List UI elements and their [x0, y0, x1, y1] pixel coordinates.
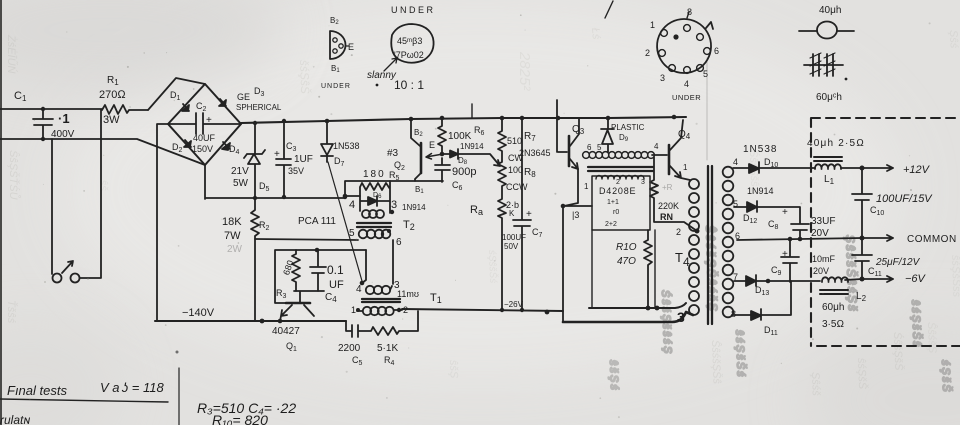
svg-text:3: 3: [391, 199, 397, 211]
svg-text:SPHERICAL: SPHERICAL: [236, 103, 282, 112]
svg-text:3: 3: [660, 73, 665, 83]
svg-text:6: 6: [587, 143, 592, 152]
svg-text:1: 1: [584, 182, 589, 191]
svg-text:·1: ·1: [58, 111, 70, 126]
svg-text:6: 6: [396, 237, 402, 248]
svg-text:Şŝś: Şŝś: [947, 30, 960, 49]
svg-text:|3: |3: [572, 210, 579, 220]
svg-text:4: 4: [356, 284, 362, 295]
svg-text:Fınal tests: Fınal tests: [7, 383, 67, 398]
svg-text:100UF: 100UF: [502, 233, 526, 242]
svg-text:900p: 900p: [452, 166, 476, 178]
svg-text:ŚŝśŞšŠ: ŚŝśŞšŠ: [891, 332, 905, 372]
svg-text:1: 1: [351, 305, 356, 315]
svg-text:510: 510: [507, 136, 522, 146]
svg-text:ŝšŞ: ŝšŞ: [447, 360, 460, 379]
svg-text:4: 4: [349, 199, 355, 211]
svg-text:33UF: 33UF: [811, 216, 835, 227]
svg-text:1N914: 1N914: [402, 203, 426, 212]
svg-text:ŝš: ŝš: [97, 180, 109, 192]
svg-text:šśŞŝŠ: šśŞŝŠ: [297, 60, 313, 95]
svg-text:60μᶜh: 60μᶜh: [816, 92, 842, 103]
svg-text:5: 5: [733, 199, 738, 209]
svg-text:Ťšŝś: Ťšŝś: [5, 300, 18, 324]
svg-text:D6: D6: [373, 192, 382, 200]
svg-text:2: 2: [676, 227, 681, 237]
svg-text:40μh: 40μh: [819, 5, 841, 16]
svg-text:ŜŝśšŞŠŝśšŞ: ŜŝśšŞŠŝśšŞ: [703, 225, 721, 313]
svg-text:ŚŝśŞšŝśŞ: ŚŝśŞšŝśŞ: [659, 290, 674, 356]
svg-text:5: 5: [349, 228, 355, 239]
svg-text:1UF: 1UF: [294, 154, 313, 165]
svg-text:100K: 100K: [448, 131, 472, 142]
svg-text:0.1: 0.1: [327, 263, 344, 277]
svg-text:1: 1: [683, 163, 688, 172]
svg-text:'7Pω02: '7Pω02: [394, 50, 424, 60]
svg-text:−140V: −140V: [182, 307, 215, 319]
svg-text:3: 3: [394, 280, 400, 291]
svg-text:ŻśĖĪŰŃ: ŻśĖĪŰŃ: [5, 34, 19, 74]
svg-text:10 : 1: 10 : 1: [394, 78, 424, 92]
svg-text:220K: 220K: [658, 201, 679, 211]
svg-text:V a ʖ = 118: V a ʖ = 118: [100, 380, 164, 395]
svg-text:8: 8: [687, 7, 692, 17]
svg-text:2+2: 2+2: [605, 221, 617, 228]
svg-text:3: 3: [677, 309, 685, 325]
svg-text:1N538: 1N538: [743, 144, 777, 155]
svg-text:ŝśŞšŠŝ: ŝśŞšŠŝ: [909, 300, 924, 349]
svg-text:PCA 111: PCA 111: [298, 216, 336, 227]
svg-text:2200: 2200: [338, 343, 361, 354]
svg-text:6: 6: [735, 231, 740, 241]
svg-text:CCW: CCW: [506, 182, 528, 192]
svg-text:40μh 2·5Ω: 40μh 2·5Ω: [807, 138, 865, 149]
svg-text:COMMON: COMMON: [907, 234, 957, 245]
svg-text:śŞŝšŠś: śŞŝšŠś: [486, 250, 500, 284]
svg-text:D4208E: D4208E: [599, 186, 636, 196]
svg-text:GE: GE: [237, 92, 250, 102]
svg-text:2: 2: [403, 305, 408, 315]
svg-text:20V: 20V: [811, 228, 829, 239]
svg-text:UNDER: UNDER: [391, 5, 436, 15]
svg-text:UNDER: UNDER: [672, 93, 701, 102]
svg-text:+R: +R: [662, 183, 673, 192]
svg-text:E: E: [348, 42, 354, 52]
svg-text:21V: 21V: [231, 166, 249, 177]
svg-text:20V: 20V: [813, 266, 829, 276]
svg-text:2: 2: [645, 48, 650, 58]
svg-text:270Ω: 270Ω: [99, 89, 126, 101]
svg-text:UNDER: UNDER: [321, 83, 351, 90]
svg-text:ɾulatɴ: ɾulatɴ: [0, 413, 30, 425]
svg-text:100: 100: [508, 165, 523, 175]
svg-text:PLASTIC: PLASTIC: [611, 123, 645, 132]
svg-text:11mʊ: 11mʊ: [397, 289, 419, 299]
svg-text:2: 2: [616, 179, 620, 186]
svg-text:1+1: 1+1: [607, 199, 619, 206]
svg-text:2W: 2W: [227, 244, 243, 255]
svg-text:6: 6: [714, 46, 719, 56]
svg-text:4: 4: [654, 142, 659, 151]
svg-text:+12V: +12V: [903, 164, 931, 176]
svg-text:3W: 3W: [103, 114, 120, 126]
svg-text:+: +: [526, 209, 532, 220]
svg-text:60μh: 60μh: [822, 302, 844, 313]
svg-text:+: +: [206, 115, 212, 126]
svg-text:−26V: −26V: [504, 300, 524, 309]
svg-text:1: 1: [650, 20, 655, 30]
svg-text:E: E: [429, 140, 435, 150]
svg-text:+: +: [782, 249, 788, 260]
svg-text:5·1K: 5·1K: [377, 343, 398, 354]
svg-text:UF: UF: [329, 279, 344, 291]
svg-text:7: 7: [733, 272, 738, 282]
svg-text:40427: 40427: [272, 326, 300, 337]
svg-text:Łś: Łś: [589, 27, 602, 40]
svg-text:R1O: R1O: [616, 242, 637, 253]
svg-text:ŝšŞś: ŝšŞś: [607, 360, 620, 392]
svg-text:1N538: 1N538: [333, 141, 360, 151]
svg-text:4: 4: [684, 79, 689, 89]
svg-text:10mF: 10mF: [812, 254, 836, 264]
svg-text:ŜŝśšŞ: ŜŝśšŞ: [925, 322, 939, 354]
svg-text:K: K: [509, 209, 515, 218]
svg-text:40UF: 40UF: [193, 133, 216, 143]
svg-text:2N3645: 2N3645: [519, 148, 551, 158]
svg-text:100UF/15V: 100UF/15V: [876, 193, 933, 205]
svg-text:5: 5: [597, 143, 602, 152]
svg-text:400V: 400V: [51, 129, 75, 140]
svg-text:R₁₀= 820: R₁₀= 820: [212, 412, 268, 425]
svg-text:35V: 35V: [288, 166, 304, 176]
svg-text:47O: 47O: [617, 256, 636, 267]
svg-text:+: +: [782, 207, 788, 218]
svg-text:ŝśŞšŠŝś: ŝśŞšŠŝś: [949, 255, 960, 298]
svg-text:RN: RN: [660, 212, 673, 222]
svg-text:#3: #3: [387, 148, 399, 159]
svg-text:8: 8: [731, 309, 736, 319]
svg-text:r0: r0: [613, 209, 619, 216]
svg-text:4: 4: [733, 157, 738, 167]
svg-text:2825²: 2825²: [516, 51, 533, 91]
svg-text:ŝśŞšŠ: ŝśŞšŠ: [855, 358, 869, 390]
svg-text:5W: 5W: [233, 178, 249, 189]
svg-text:1N914: 1N914: [747, 186, 774, 196]
svg-text:ŝśŞšŠś: ŝśŞšŠś: [733, 330, 748, 379]
svg-text:−6V: −6V: [905, 273, 927, 285]
svg-text:5: 5: [703, 69, 708, 79]
svg-text:7W: 7W: [224, 230, 241, 242]
svg-text:Şŝśš: Şŝśš: [809, 372, 822, 397]
svg-text:ŜŝŞŠŤŚŮ: ŜŝŞŠŤŚŮ: [7, 150, 21, 200]
svg-text:45ᵐβ3: 45ᵐβ3: [397, 36, 422, 46]
svg-text:ŜŝśšŞŠŝ: ŜŝśšŞŠŝ: [709, 340, 724, 385]
svg-text:180: 180: [363, 169, 386, 180]
svg-text:śŞšŠ: śŞšŠ: [939, 360, 953, 394]
svg-text:18K: 18K: [222, 216, 242, 228]
svg-text:3·5Ω: 3·5Ω: [822, 319, 844, 330]
svg-text:3: 3: [641, 179, 645, 186]
svg-text:50V: 50V: [504, 242, 519, 251]
svg-text:25μF/12V: 25μF/12V: [875, 257, 921, 268]
svg-text:150V: 150V: [192, 144, 213, 154]
svg-text:+: +: [274, 149, 280, 160]
svg-text:1N914: 1N914: [460, 142, 484, 151]
svg-text:slanny: slanny: [367, 70, 397, 81]
